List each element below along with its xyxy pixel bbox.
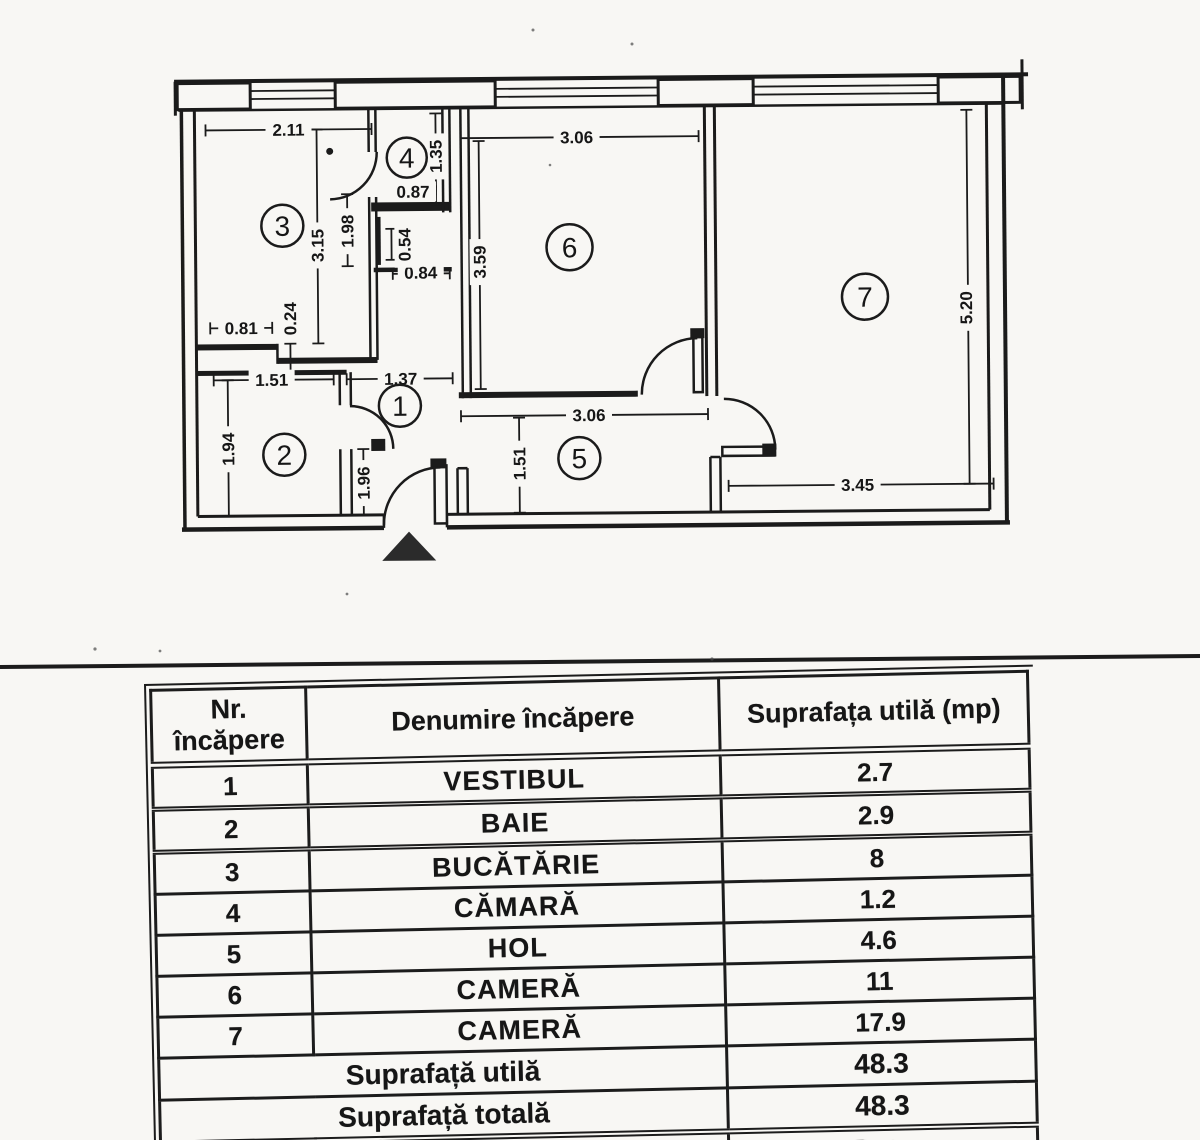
cell-nr: 1 (152, 762, 308, 809)
room-circle-5: 5 (571, 443, 587, 474)
header-suprafata: Suprafața utilă (mp) (719, 671, 1030, 753)
cell-nr: 7 (158, 1014, 314, 1058)
header-nr-incapere: Nr. încăpere (151, 687, 308, 765)
scanned-floorplan-document: 2.11 0.81 1.51 1.37 0.87 0.84 3.06 3.06 … (0, 0, 1200, 1140)
dim-niche-height: 0.54 (395, 228, 414, 262)
cell-area: 2.9 (721, 790, 1031, 840)
room-circle-1: 1 (392, 391, 408, 422)
room-area-table: Nr. încăpere Denumire încăpere Suprafața… (144, 665, 1044, 1140)
dim-hall-height: 1.51 (510, 447, 529, 480)
cell-area: 4.6 (724, 916, 1034, 964)
dim-kitchen-niche-width: 0.81 (225, 319, 258, 338)
cell-area: 1.2 (723, 875, 1033, 923)
room-circle-7: 7 (857, 282, 873, 313)
scan-noise (93, 29, 713, 661)
dim-room6-width: 3.06 (560, 128, 593, 147)
cell-nr: 4 (155, 891, 311, 935)
summary-value: 48.3 (727, 1081, 1037, 1131)
floor-plan-drawing: 2.11 0.81 1.51 1.37 0.87 0.84 3.06 3.06 … (0, 0, 1200, 678)
cell-nr: 3 (154, 849, 310, 894)
cell-area: 11 (725, 957, 1035, 1005)
door-hinge-dot (326, 148, 333, 155)
summary-value: 48.3 (727, 1039, 1037, 1088)
cell-nr: 2 (153, 806, 309, 852)
cell-area: 2.7 (720, 746, 1030, 797)
dim-kitchen-door-height: 1.98 (338, 215, 357, 248)
entrance-arrow (382, 531, 436, 560)
dim-bath-height: 1.94 (219, 432, 238, 466)
top-exterior-wall (174, 59, 1028, 116)
cell-area: 8 (722, 833, 1032, 882)
room-number-circles: 1 2 3 4 5 6 7 (261, 133, 890, 481)
room-circle-3: 3 (274, 211, 290, 242)
cell-area: 17.9 (726, 998, 1036, 1046)
dim-bath-width: 1.51 (255, 371, 288, 390)
dim-hall-width: 3.06 (572, 406, 605, 425)
cell-nr: 6 (157, 973, 313, 1017)
dim-room6-height: 3.59 (471, 245, 490, 278)
dim-bath-wall-height: 1.96 (354, 466, 373, 499)
dim-kitchen-niche-depth: 0.24 (281, 302, 300, 336)
dim-room7-height: 5.20 (957, 291, 976, 324)
dim-pantry-height: 1.35 (427, 140, 446, 173)
room-circle-4: 4 (399, 143, 415, 174)
cell-nr: 5 (156, 932, 312, 976)
dim-kitchen-height: 3.15 (308, 229, 327, 262)
room-circle-2: 2 (276, 440, 292, 471)
dim-pantry-width: 0.87 (396, 182, 429, 201)
header-denumire: Denumire încăpere (306, 678, 721, 762)
dim-room7-bottom-width: 3.45 (841, 476, 874, 495)
room-circle-6: 6 (562, 232, 578, 263)
dim-kitchen-width: 2.11 (272, 121, 304, 140)
